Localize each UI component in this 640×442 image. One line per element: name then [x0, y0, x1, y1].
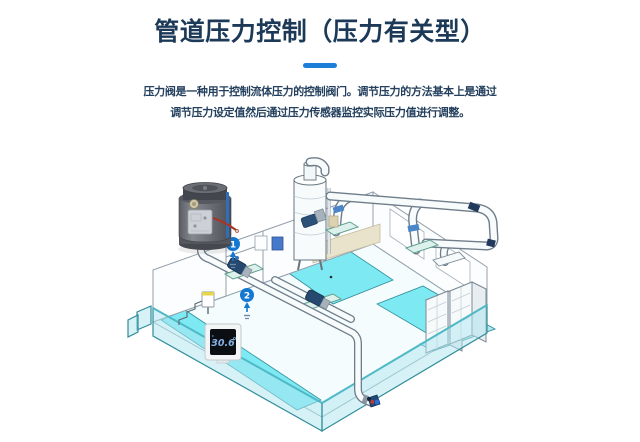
pipe-coupler	[469, 205, 479, 209]
electrical-box	[272, 237, 283, 250]
slide: 管道压力控制（压力有关型） 压力阀是一种用于控制流体压力的控制阀门。调节压力的方…	[0, 12, 640, 437]
flange-band	[334, 208, 344, 211]
display-value: 30.6	[211, 338, 235, 349]
valve-product-photo	[178, 183, 239, 255]
pipe-coupler	[487, 242, 495, 244]
flange-band	[408, 227, 419, 229]
marker-2-label: 2	[244, 292, 250, 302]
title-accent-bar	[303, 63, 337, 68]
facility-illustration: 30.6 1	[125, 152, 515, 437]
description-text: 压力阀是一种用于控制流体压力的控制阀门。调节压力的方法基本上是通过 调节压力设定…	[130, 82, 510, 124]
isometric-scene: 30.6 1	[125, 152, 515, 437]
label-plate	[188, 210, 212, 234]
description-line-1: 压力阀是一种用于控制流体压力的控制阀门。调节压力的方法基本上是通过	[143, 86, 496, 98]
pressure-display: 30.6	[205, 324, 241, 363]
description-line-2: 调节压力设定值然后通过压力传感器监控实际压力值进行调整。	[170, 107, 470, 119]
junction-box	[329, 216, 338, 227]
cabinet-box	[255, 236, 267, 250]
page-title: 管道压力控制（压力有关型）	[0, 12, 640, 48]
